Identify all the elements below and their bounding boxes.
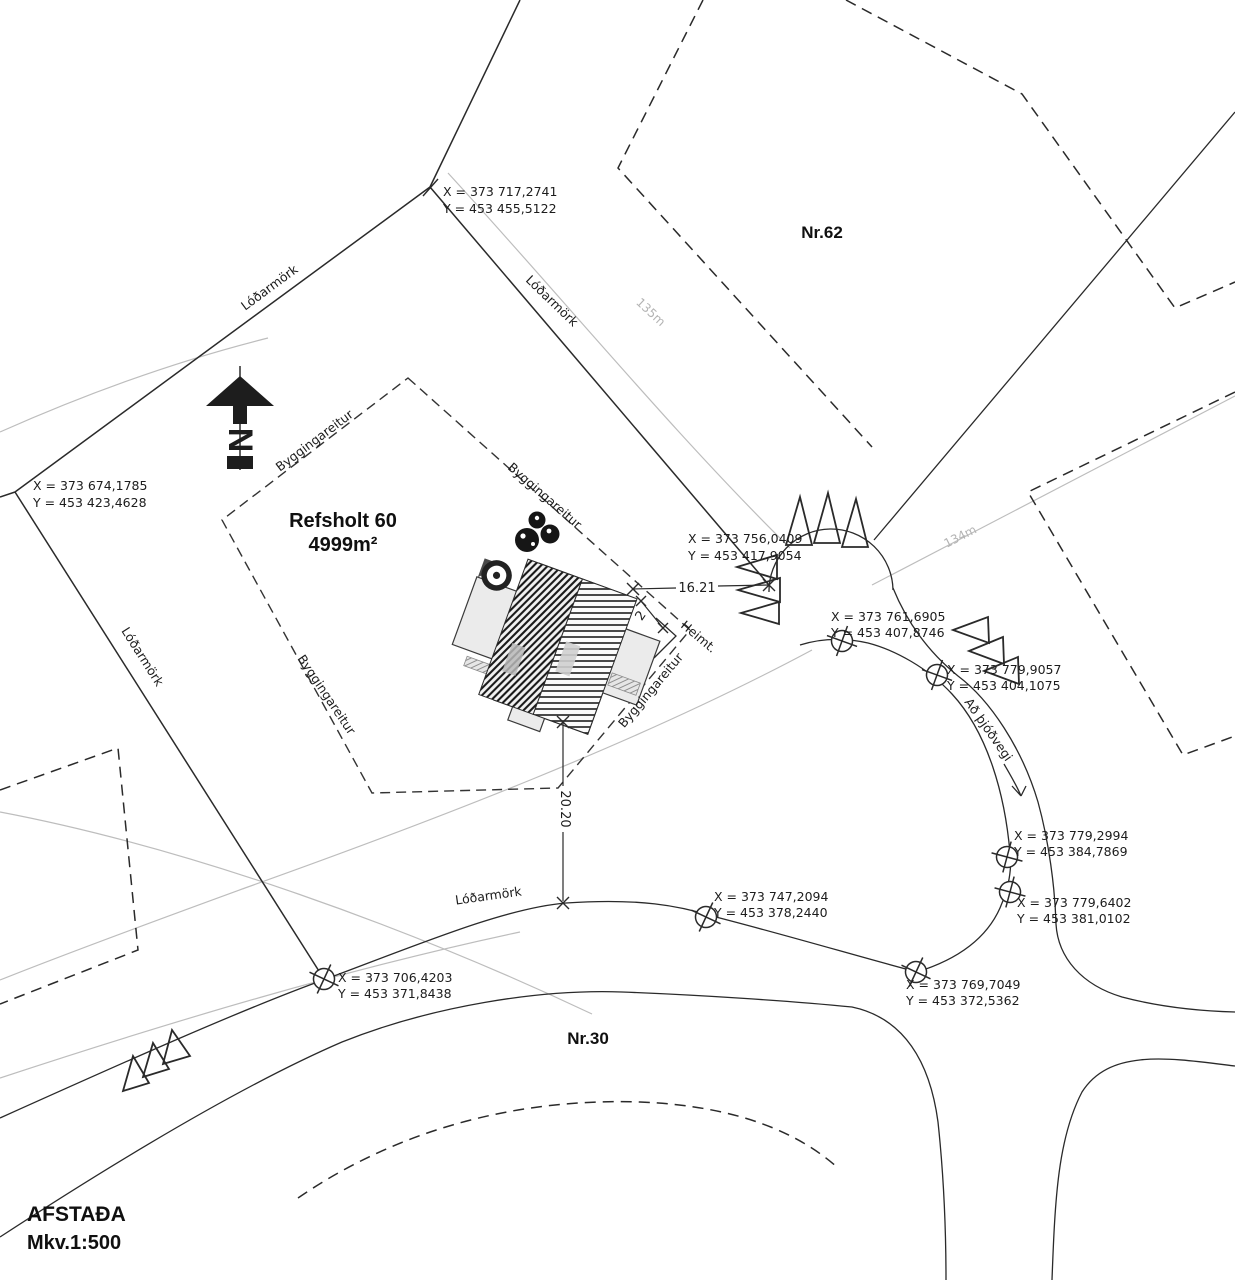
dim-16-21-label: 16.21 [678, 581, 715, 596]
driveway-note: Heimt. [654, 617, 720, 658]
neighbor-south-label: Nr.30 [567, 1029, 609, 1048]
coord-label: Y = 453 423,4628 [32, 495, 147, 510]
coord-label: Y = 453 371,8438 [337, 986, 452, 1001]
drawing-scale: Mkv.1:500 [27, 1232, 121, 1254]
distance-134m-label: 134m [942, 522, 979, 550]
north-arrow-head [206, 376, 274, 406]
coord-label: X = 373 674,1785 [33, 478, 147, 493]
west-plot-boundary [0, 748, 138, 1004]
coord-label: Y = 453 417,9054 [687, 548, 802, 563]
road-edge-south-east [1052, 1059, 1235, 1280]
triangle-marker [953, 617, 989, 643]
distance-135m-label: 135m [633, 295, 668, 329]
triangle-marker [814, 493, 840, 543]
triangle-marker [143, 1043, 169, 1077]
tree-icons [515, 512, 560, 553]
triangle-marker [969, 637, 1004, 664]
road-edge-north-east [874, 112, 1235, 540]
drawing-title: AFSTAÐA [27, 1203, 126, 1226]
road-edge-east [893, 588, 1235, 1012]
plot-boundary-n-ext [430, 0, 520, 187]
tree-icon [541, 525, 560, 544]
dimension-20-20: 20.20 [557, 716, 572, 909]
site-plan-page: 135m 134m [0, 0, 1235, 1280]
gray-line-topleft [0, 338, 268, 432]
coord-label: X = 373 717,2741 [443, 184, 557, 199]
coord-label: Y = 453 384,7869 [1013, 844, 1128, 859]
coord-label: Y = 453 381,0102 [1016, 911, 1131, 926]
nr62-boundary-right [846, 0, 1235, 308]
lodarmork-label: Lóðarmörk [119, 624, 168, 689]
coord-label: Y = 453 404,1075 [946, 678, 1061, 693]
to-road-note: Að þjóðvegi [961, 695, 1026, 796]
coord-label: X = 373 756,0409 [688, 531, 803, 546]
to-road-arrow [1004, 764, 1026, 796]
coord-label: X = 373 769,7049 [906, 977, 1021, 992]
north-arrow-base [227, 456, 253, 469]
tree-highlight [520, 533, 525, 538]
gray-line-135m [448, 173, 790, 548]
triangle-marker [842, 499, 868, 547]
triangle-marker [741, 602, 779, 624]
coord-label: Y = 453 407,8746 [830, 625, 945, 640]
coord-label: X = 373 779,2994 [1014, 828, 1129, 843]
dim-2-label: 2 [633, 608, 650, 623]
coord-label: X = 373 779,6402 [1017, 895, 1131, 910]
coord-label: X = 373 706,4203 [338, 970, 452, 985]
coord-label: Y = 453 455,5122 [442, 201, 557, 216]
south-dashed-curve [298, 1102, 838, 1198]
coord-label: X = 373 779,9057 [947, 662, 1061, 677]
plot-boundary-sw [15, 492, 324, 979]
coord-label: X = 373 761,6905 [831, 609, 945, 624]
road-edge-south [0, 992, 946, 1280]
plot-boundary-ne [430, 187, 769, 585]
coord-label: X = 373 747,2094 [714, 889, 829, 904]
tree-highlight [535, 516, 539, 520]
plot-name-label: Refsholt 60 [289, 510, 397, 532]
coord-label: Y = 453 378,2440 [713, 905, 828, 920]
tree-highlight [531, 542, 535, 546]
line-labels: Lóðarmörk Lóðarmörk Lóðarmörk Lóðarmörk … [119, 261, 687, 908]
neighbor-north-label: Nr.62 [801, 223, 843, 242]
house [434, 545, 670, 760]
byggingareitur-label: Byggingareitur [273, 406, 357, 474]
gray-line-134m [872, 396, 1235, 585]
east-plot-boundary [1028, 392, 1235, 755]
coord-label: Y = 453 372,5362 [905, 993, 1020, 1008]
north-letter: N [221, 428, 259, 453]
tree-highlight [547, 529, 552, 534]
dim-20-20-label: 20.20 [557, 790, 572, 827]
plot-boundary-tick-west [0, 492, 15, 497]
tree-icon [515, 528, 539, 552]
north-arrow-shaft [233, 406, 247, 424]
titles: Refsholt 60 4999m² Nr.62 Nr.30 AFSTAÐA M… [27, 223, 843, 1254]
gray-contour-b [0, 650, 812, 980]
north-arrow: N [206, 366, 274, 470]
site-plan-drawing: 135m 134m [0, 0, 1235, 1280]
byggingareitur-label: Byggingareitur [295, 652, 360, 738]
gray-contour-a [0, 812, 592, 1014]
lodarmork-label: Lóðarmörk [523, 272, 582, 330]
plot-area-label: 4999m² [309, 534, 378, 556]
lodarmork-label: Lóðarmörk [454, 883, 523, 907]
building-envelope [222, 378, 690, 793]
dimension-2: 2 [633, 596, 668, 633]
